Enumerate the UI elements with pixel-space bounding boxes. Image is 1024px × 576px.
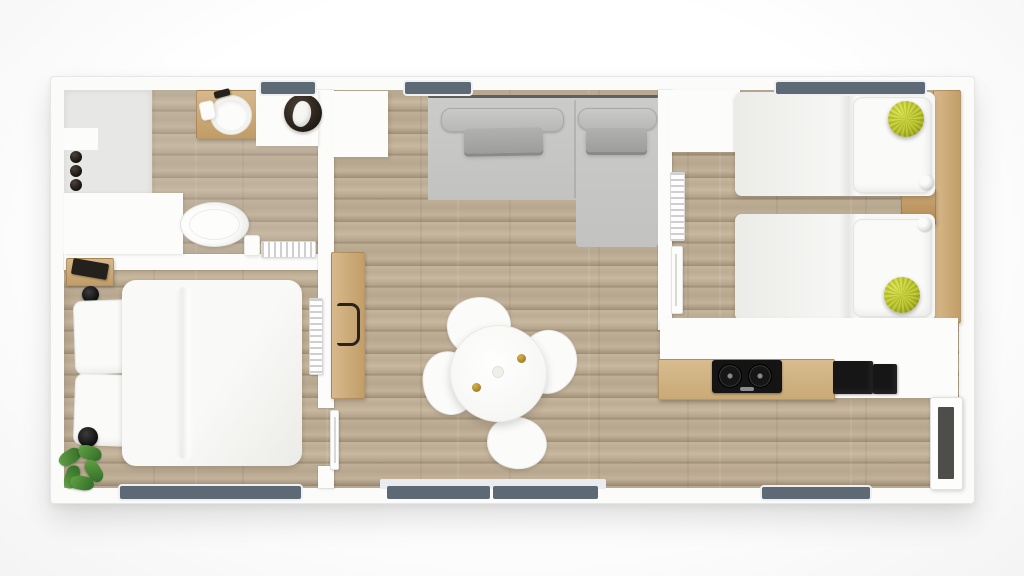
- kids-wardrobe: [670, 90, 740, 152]
- floor-plan-render: [0, 0, 1024, 576]
- kitchen-niche: [873, 364, 897, 394]
- sofa-bolster: [578, 108, 657, 130]
- white-pompom: [919, 175, 933, 189]
- sofa-cushion: [586, 128, 647, 152]
- yellow-knot-pillow: [884, 277, 920, 313]
- living-closet: [332, 91, 388, 157]
- sliding-patio-door-right: [493, 486, 598, 499]
- entrance-door: [938, 407, 954, 479]
- sofa-cushion: [464, 127, 543, 153]
- potted-plant: [56, 444, 110, 494]
- toilet-cistern-unit: [64, 193, 183, 254]
- headboard-shelf: [933, 90, 961, 323]
- kids-room-sliding-door: [671, 246, 683, 314]
- yellow-knot-pillow: [888, 101, 924, 137]
- toilet: [180, 202, 249, 247]
- bedroom-door: [330, 410, 339, 470]
- bathroom-window: [261, 82, 315, 94]
- table-centerpiece: [492, 366, 504, 378]
- cooktop: [712, 360, 782, 393]
- white-pompom: [917, 217, 931, 231]
- bedroom-window: [120, 486, 301, 499]
- burner: [748, 364, 772, 388]
- living-room-window: [405, 82, 471, 94]
- shower-knob: [70, 151, 82, 163]
- cooktop-knobs: [740, 387, 754, 391]
- gold-cup: [472, 383, 481, 392]
- shower-wall-notch: [64, 128, 98, 150]
- vanity-sink: [210, 95, 252, 135]
- desk-chair: [337, 303, 360, 346]
- bedroom-radiator: [309, 298, 323, 375]
- gold-cup: [517, 354, 526, 363]
- kids-bedroom-window: [776, 82, 925, 94]
- sofa-backrest-edge: [428, 95, 658, 98]
- kids-towel-radiator: [670, 172, 685, 241]
- kitchen-window: [762, 487, 870, 499]
- waste-bin: [244, 235, 260, 256]
- sofa-seam: [574, 100, 576, 198]
- bathroom-towel-radiator: [261, 241, 316, 258]
- burner: [718, 364, 742, 388]
- shower-knob: [70, 165, 82, 177]
- double-bed-duvet: [122, 280, 302, 466]
- kitchen-sink-unit: [833, 361, 873, 394]
- shower-knob: [70, 179, 82, 191]
- sliding-patio-door-left: [387, 486, 490, 499]
